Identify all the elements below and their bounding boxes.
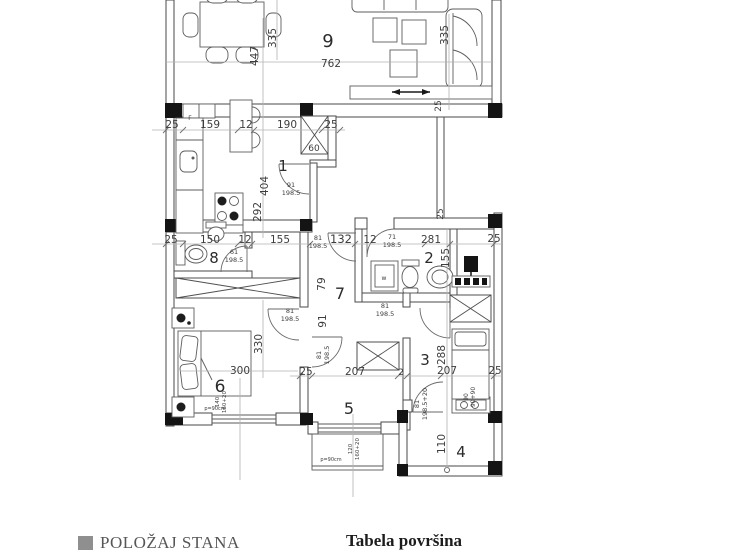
room-number: 2	[424, 249, 434, 267]
dimension-label: 198.5	[225, 256, 244, 264]
dimension-label: 404	[259, 176, 271, 196]
dimension-label: 79	[316, 277, 328, 290]
dimension-label: 25	[299, 366, 312, 378]
dimension-label: 110	[436, 434, 448, 454]
dimension-label: 81	[413, 400, 421, 408]
bed-room6	[172, 308, 251, 417]
floor-plan-drawing: 918276534 762251591219025602515012155132…	[0, 0, 740, 550]
dimension-label: 81	[315, 351, 323, 359]
dimension-label: w	[382, 275, 387, 282]
dimension-label: 91	[317, 314, 329, 327]
dimension-label: p=90cm	[320, 457, 341, 463]
dimension-label: 292	[252, 202, 264, 222]
room-number: 8	[209, 249, 219, 267]
dimension-label: F	[188, 115, 192, 122]
dimension-label: 12	[363, 234, 376, 246]
dimension-label: 81	[381, 302, 389, 310]
dimension-label: 335	[267, 28, 279, 48]
dimension-label: 160+20	[222, 390, 228, 413]
dimension-label: 2	[398, 368, 404, 378]
dimension-label: 81	[286, 307, 294, 315]
dimension-label: 198.5	[281, 315, 300, 323]
dimension-label: 335	[439, 25, 451, 45]
dimension-label: 81	[314, 234, 322, 242]
dimension-label: 91	[287, 181, 295, 189]
floor-plan-page: 918276534 762251591219025602515012155132…	[0, 0, 740, 550]
room-number: 9	[322, 31, 333, 52]
dimension-label: 447	[249, 46, 261, 66]
dimension-label: 12	[239, 119, 252, 131]
room-number: 4	[456, 443, 466, 461]
dimension-label: 159	[200, 119, 220, 131]
dimension-label: 25	[324, 119, 337, 131]
dimension-label: 300	[230, 365, 250, 377]
dimension-label: 198.5	[323, 346, 331, 365]
dimension-label: 288	[436, 345, 448, 365]
legend-position: POLOŽAJ STANA	[78, 533, 240, 550]
dimension-label: 25	[436, 208, 446, 219]
dimension-label: 120	[348, 443, 354, 454]
legend-square-icon	[78, 536, 93, 550]
dimension-label: 25	[487, 233, 500, 245]
room-number: 1	[278, 157, 288, 175]
room-number: 7	[335, 284, 345, 303]
dimension-label: 160+20	[355, 437, 361, 460]
areas-table-title: Tabela površina	[346, 531, 462, 550]
dimension-label: 90+90	[470, 387, 477, 407]
dimension-label: 25	[164, 234, 177, 246]
dimension-label: 207	[345, 366, 365, 378]
room-number: 3	[420, 351, 430, 369]
dimension-label: 762	[321, 58, 341, 70]
dimension-label: 155	[270, 234, 290, 246]
dimension-label: 190	[277, 119, 297, 131]
dimension-label: 150	[200, 234, 220, 246]
dimension-label: 207	[437, 365, 457, 377]
sliding-opening-arrow	[350, 86, 492, 99]
dimension-label: 198.5	[309, 242, 328, 250]
legend-label: POLOŽAJ STANA	[100, 533, 240, 550]
dimension-label: 25	[434, 100, 444, 111]
dimension-label: 71	[388, 233, 396, 241]
dimension-label: 330	[253, 334, 265, 354]
dimension-label: 198.5	[282, 189, 301, 197]
dimension-label: 140	[215, 396, 221, 407]
dimension-label: 155	[440, 248, 452, 268]
dimension-label: 198.5	[383, 241, 402, 249]
dimension-label: 198.5	[376, 310, 395, 318]
room-number: 5	[344, 399, 354, 418]
dimension-label: 12	[238, 234, 251, 246]
dimension-label: 61	[230, 248, 238, 256]
dimension-label: 132	[330, 232, 352, 246]
dimension-label: 25	[165, 119, 178, 131]
dimension-label: 60	[308, 144, 320, 154]
dimension-label: 281	[421, 234, 441, 246]
dimension-label: 90	[463, 393, 470, 401]
dimension-label: 25	[488, 365, 501, 377]
boiler-shelf	[452, 256, 490, 287]
sofa-set	[352, 0, 482, 88]
dimension-label: 198.5+20	[421, 388, 429, 420]
